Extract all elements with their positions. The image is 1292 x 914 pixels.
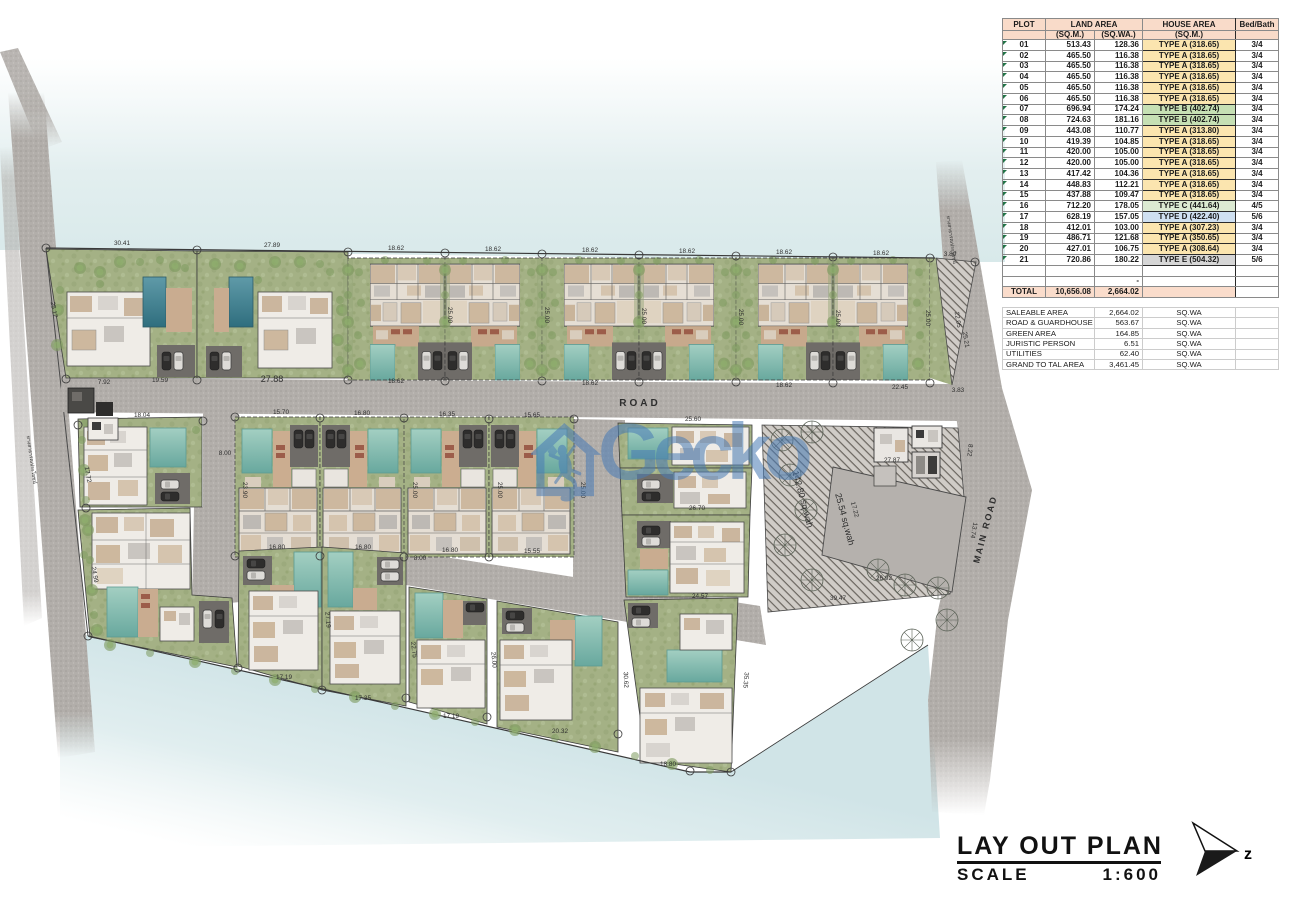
svg-text:ROAD: ROAD	[619, 398, 660, 409]
svg-text:17.19: 17.19	[276, 674, 292, 681]
svg-text:18.62: 18.62	[776, 382, 792, 389]
svg-text:16.80: 16.80	[355, 544, 371, 551]
svg-text:18.62: 18.62	[873, 250, 889, 257]
svg-text:27.87: 27.87	[884, 457, 900, 464]
svg-text:18.04: 18.04	[134, 412, 150, 419]
svg-text:8.22: 8.22	[965, 444, 973, 458]
svg-text:18.62: 18.62	[485, 246, 501, 253]
svg-text:30.41: 30.41	[114, 240, 130, 247]
svg-text:25.00: 25.00	[737, 309, 744, 325]
svg-text:18.62: 18.62	[388, 378, 404, 385]
svg-text:8.00: 8.00	[414, 555, 427, 562]
svg-text:16.35: 16.35	[439, 411, 455, 418]
svg-text:25.00: 25.00	[543, 307, 550, 323]
svg-text:16.80: 16.80	[269, 544, 285, 551]
svg-text:Gecko: Gecko	[598, 420, 810, 496]
svg-text:25.00: 25.00	[640, 308, 647, 324]
svg-text:30.62: 30.62	[622, 672, 630, 689]
svg-text:35.35: 35.35	[741, 672, 749, 689]
svg-text:39.47: 39.47	[830, 595, 846, 602]
svg-text:17.19: 17.19	[443, 713, 459, 720]
svg-text:7.92: 7.92	[98, 379, 111, 386]
svg-text:18.62: 18.62	[679, 248, 695, 255]
svg-text:20.32: 20.32	[552, 728, 568, 735]
svg-text:18.62: 18.62	[388, 245, 404, 252]
svg-text:19.59: 19.59	[152, 377, 168, 384]
svg-text:17.35: 17.35	[355, 695, 371, 702]
svg-text:23.90: 23.90	[241, 482, 248, 498]
svg-text:18.62: 18.62	[776, 249, 792, 256]
svg-text:25.00: 25.00	[924, 310, 931, 326]
svg-text:25.00: 25.00	[446, 307, 453, 323]
svg-text:15.55: 15.55	[524, 548, 540, 555]
svg-text:3.83: 3.83	[952, 387, 965, 394]
svg-text:27.89: 27.89	[264, 242, 280, 249]
svg-text:24.57: 24.57	[692, 593, 708, 600]
svg-text:8.00: 8.00	[219, 450, 232, 457]
svg-text:15.65: 15.65	[524, 412, 540, 419]
svg-text:25.00: 25.00	[496, 482, 503, 498]
svg-text:18.62: 18.62	[582, 380, 598, 387]
svg-text:27.88: 27.88	[261, 374, 284, 384]
svg-text:26.00: 26.00	[489, 652, 497, 669]
svg-text:25.00: 25.00	[834, 310, 841, 326]
svg-text:z: z	[1244, 846, 1252, 863]
svg-text:18.80: 18.80	[660, 761, 676, 768]
svg-text:18.62: 18.62	[582, 247, 598, 254]
svg-text:16.80: 16.80	[442, 547, 458, 554]
svg-text:26.92: 26.92	[876, 575, 892, 582]
svg-text:25.00: 25.00	[411, 482, 418, 498]
svg-text:27.19: 27.19	[323, 612, 331, 629]
svg-text:15.70: 15.70	[273, 409, 289, 416]
svg-text:16.80: 16.80	[354, 410, 370, 417]
svg-text:22.45: 22.45	[892, 384, 908, 391]
